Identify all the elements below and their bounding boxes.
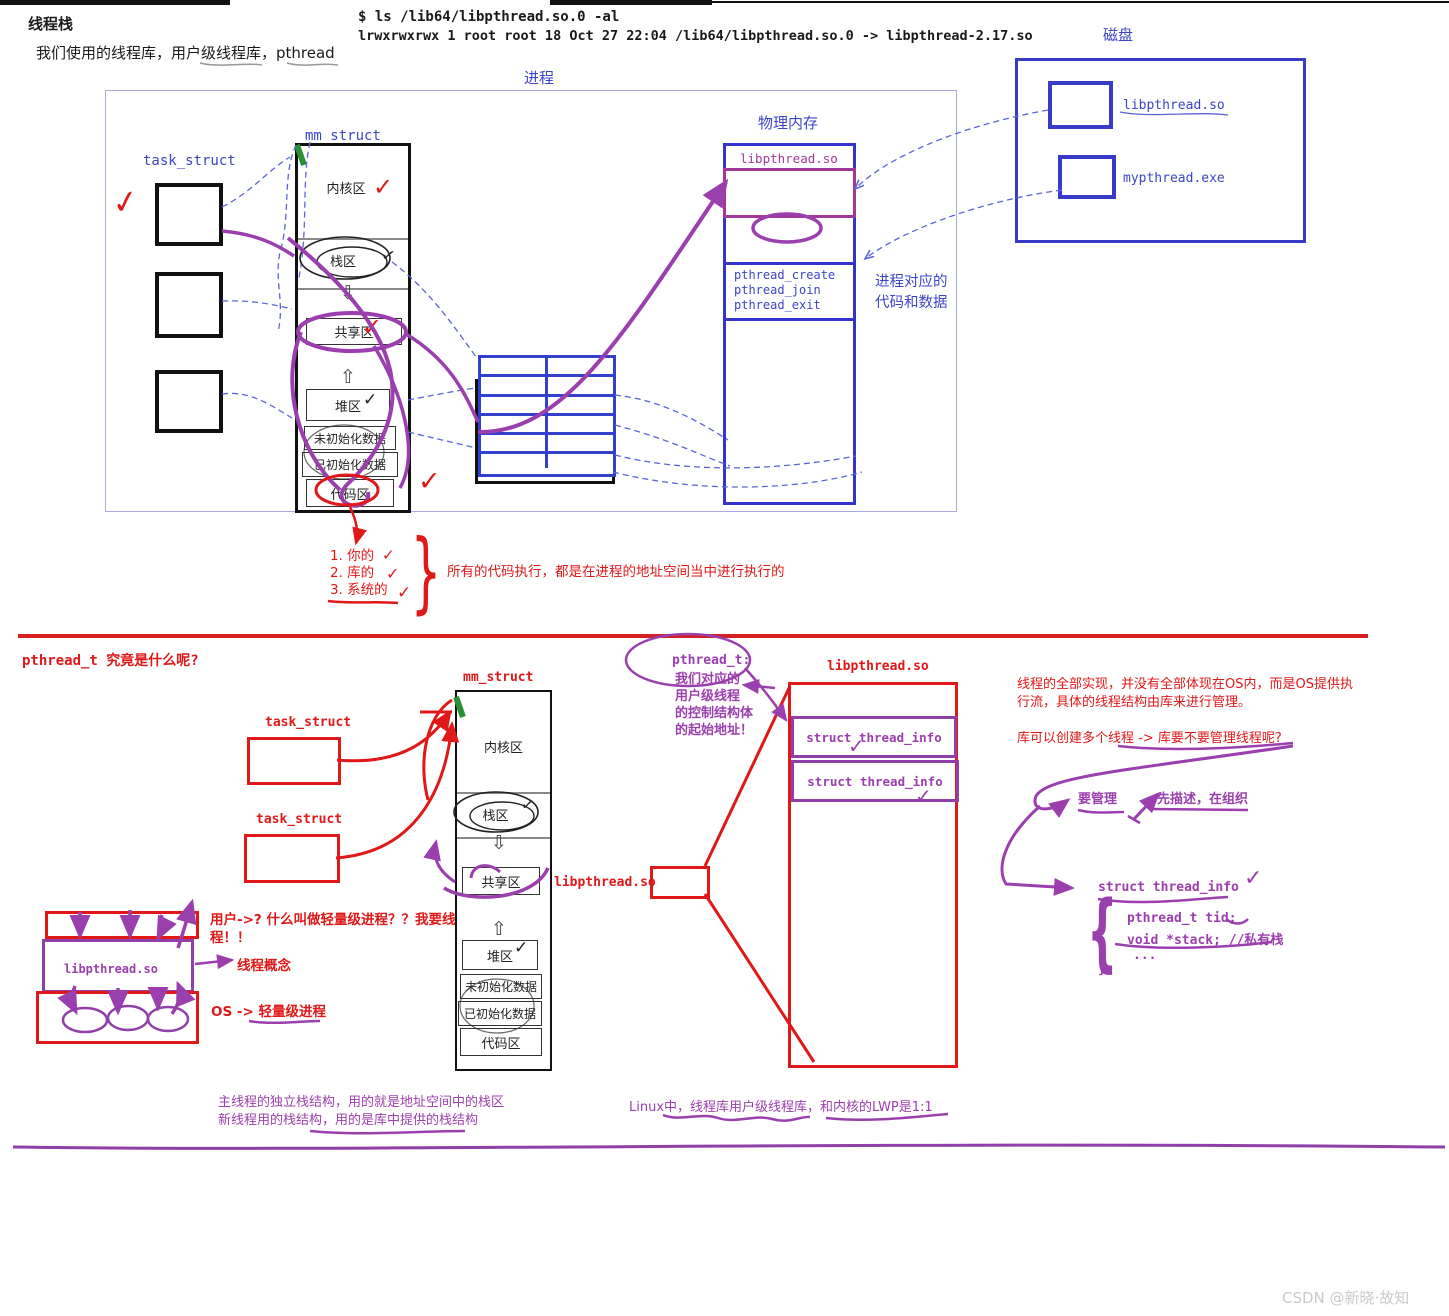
shared-lib-label: libpthread.so — [554, 875, 656, 890]
watermark: CSDN @新晓·故知 — [1282, 1287, 1409, 1308]
stack-structure-note: 主线程的独立栈结构，用的就是地址空间中的栈区 新线程用的栈结构，用的是库中提供的… — [218, 1094, 504, 1130]
disk-title: 磁盘 — [1103, 24, 1133, 45]
code-struct-title: struct thread_info — [1098, 880, 1239, 895]
impl-note: 线程的全部实现，并没有全部体现在OS内，而是OS提供执 行流，具体的线程结构由库… — [1017, 676, 1353, 712]
check-icon: ✓ — [363, 392, 377, 409]
segment-stack: 栈区 — [298, 251, 388, 270]
disk-lib-box — [1048, 81, 1113, 129]
brace-left-icon: { — [1087, 890, 1117, 975]
block-arrow-down-icon: ⇩ — [491, 834, 507, 853]
task-struct-label-b2: task_struct — [256, 812, 342, 827]
task-struct-square-2 — [155, 272, 223, 338]
segment-code: 代码区 — [306, 479, 394, 507]
segment-init-b: 已初始化数据 — [458, 1001, 542, 1026]
terminal-line-1: $ ls /lib64/libpthread.so.0 -al — [358, 9, 619, 25]
fn-pthread-exit: pthread_exit — [734, 298, 853, 312]
thread-concept-label: 线程概念 — [237, 954, 291, 974]
task-struct-square-1 — [155, 183, 223, 246]
physmem-side-note: 进程对应的 代码和数据 — [875, 272, 948, 314]
task-struct-label-b1: task_struct — [265, 715, 351, 730]
segment-heap: 堆区 — [306, 389, 390, 421]
physmem-fn-box: pthread_create pthread_join pthread_exit — [723, 262, 856, 321]
libbox-label: libpthread.so — [827, 659, 929, 674]
segment-shared-b: 共享区 — [462, 867, 540, 895]
section-divider — [18, 634, 1368, 638]
pthread-t-title: pthread_t: — [672, 653, 750, 668]
check-icon: ✓ — [382, 548, 395, 563]
task-struct-square-3 — [155, 370, 223, 433]
fn-pthread-join: pthread_join — [734, 283, 853, 297]
top-bar-left — [0, 0, 230, 5]
code-origin-note: 所有的代码执行，都是在进程的地址空间当中进行执行的 — [447, 560, 785, 580]
check-icon: ✓ — [397, 585, 411, 602]
disk-exe-label: mypthread.exe — [1123, 171, 1225, 186]
disk-lib-label: libpthread.so — [1123, 98, 1225, 113]
task-struct-label-top: task_struct — [143, 153, 236, 169]
physmem-lib-label: libpthread.so — [740, 151, 838, 166]
top-bar-mid — [550, 0, 712, 5]
segment-uninit: 未初始化数据 — [304, 426, 396, 450]
brace-right-icon: } — [411, 528, 442, 616]
physical-memory-title: 物理内存 — [758, 112, 818, 133]
segment-shared: 共享区 — [306, 318, 402, 345]
os-layer-box — [36, 991, 199, 1044]
check-icon: ✓ — [915, 786, 932, 806]
page-table-divider — [545, 358, 548, 468]
physmem-lib-box — [723, 168, 856, 218]
check-icon: ✓ — [386, 566, 399, 582]
code-stack: void *stack; //私有栈 — [1127, 929, 1283, 948]
check-icon: ✓ — [362, 315, 382, 339]
thread-info-box-2: struct thread_info — [791, 760, 959, 802]
block-arrow-up-icon: ⇧ — [491, 920, 507, 939]
whiteboard-canvas: 线程栈 我们使用的线程库，用户级线程库，pthread $ ls /lib64/… — [0, 0, 1449, 1316]
process-title: 进程 — [524, 67, 554, 88]
check-icon: ✓ — [418, 468, 441, 495]
user-question: 用户->? 什么叫做轻量级进程？？我要线程！！ — [210, 911, 462, 947]
lib-layer-label: libpthread.so — [64, 962, 158, 976]
disk-box: libpthread.so mypthread.exe — [1015, 58, 1306, 243]
pthread-t-note: 我们对应的 用户级线程 的控制结构体 的起始地址！ — [675, 671, 753, 739]
check-icon: ✓ — [109, 184, 141, 220]
manage-label: 要管理 — [1078, 788, 1117, 807]
code-origin-list: 1. 你的 2. 库的 3. 系统的 — [330, 548, 388, 599]
bottom-question: pthread_t 究竟是什么呢? — [22, 650, 199, 670]
subtitle: 我们使用的线程库，用户级线程库，pthread — [36, 42, 335, 63]
segment-code-b: 代码区 — [460, 1028, 542, 1056]
page-table — [478, 355, 616, 477]
top-bar-thin — [712, 1, 1449, 3]
segment-init: 已初始化数据 — [302, 452, 398, 477]
fn-pthread-create: pthread_create — [734, 268, 853, 282]
physical-memory-column: libpthread.so pthread_create pthread_joi… — [723, 143, 856, 505]
task-struct-box-b2 — [244, 834, 340, 883]
check-icon: ✓ — [1244, 868, 1262, 890]
page-title: 线程栈 — [28, 13, 73, 34]
thread-info-box-1: struct thread_info — [791, 716, 957, 758]
describe-label: 先描述，在组织 — [1157, 788, 1248, 807]
block-arrow-down-icon: ⇩ — [340, 284, 356, 303]
check-icon: ✓ — [373, 175, 393, 199]
address-space-bottom: 内核区 栈区 ⇩ 共享区 ⇧ 堆区 未初始化数据 已初始化数据 代码区 — [455, 690, 552, 1071]
create-note: 库可以创建多个线程 -> 库要不要管理线程呢? — [1017, 727, 1282, 746]
mm-struct-label-top: mm_struct — [305, 128, 381, 144]
check-icon: ✓ — [514, 940, 528, 957]
linux-lwp-note: Linux中，线程库用户级线程库，和内核的LWP是1:1 — [629, 1096, 933, 1115]
check-icon: ✓ — [848, 736, 865, 756]
segment-uninit-b: 未初始化数据 — [460, 974, 542, 999]
mm-struct-label-bottom: mm_struct — [463, 670, 533, 685]
task-struct-box-b1 — [247, 737, 341, 785]
block-arrow-up-icon: ⇧ — [340, 368, 356, 387]
code-tid: pthread_t tid; — [1127, 911, 1237, 926]
check-icon: ✓ — [520, 796, 536, 814]
terminal-line-2: lrwxrwxrwx 1 root root 18 Oct 27 22:04 /… — [358, 28, 1033, 44]
address-space-top: 内核区 栈区 ⇩ 共享区 ⇧ 堆区 未初始化数据 已初始化数据 代码区 — [295, 143, 411, 513]
disk-exe-box — [1058, 155, 1116, 199]
segment-kernel-b: 内核区 — [457, 737, 550, 756]
shared-zoom-box — [650, 866, 710, 899]
os-lwp-label: OS -> 轻量级进程 — [211, 1000, 326, 1020]
code-ellipsis: ... — [1133, 948, 1156, 963]
user-layer-box — [45, 911, 199, 939]
